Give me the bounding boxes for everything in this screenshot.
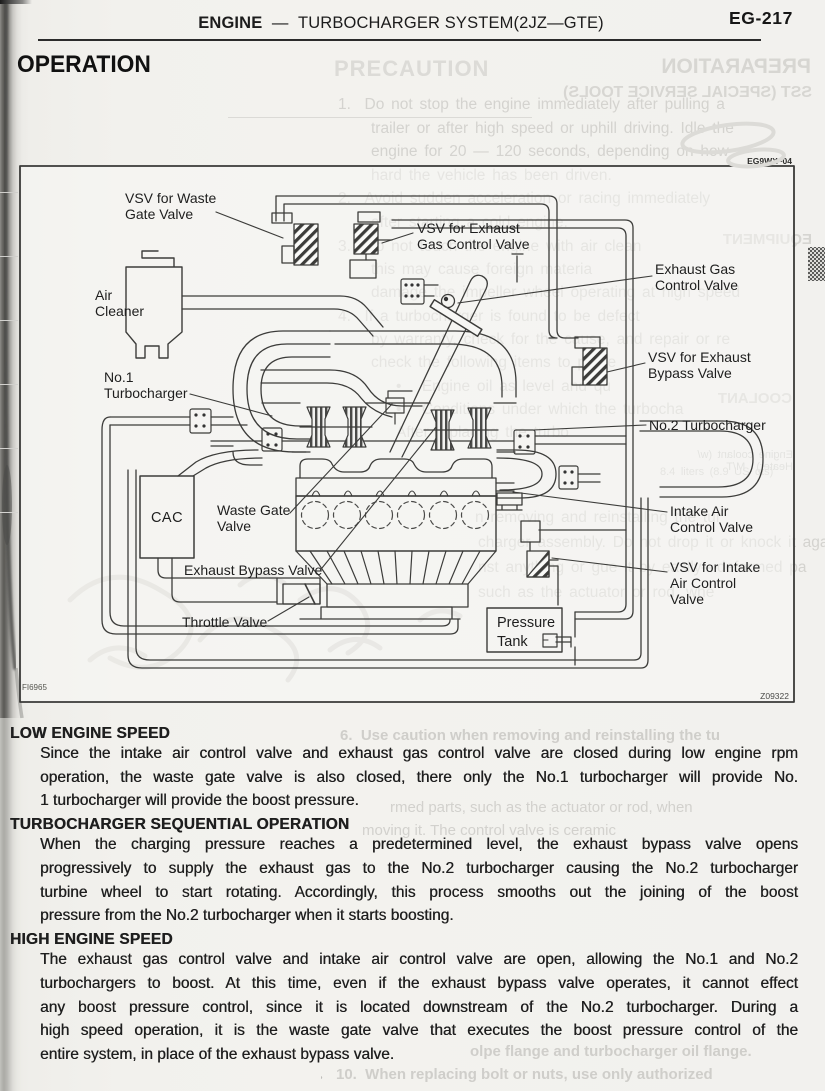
svg-text:Gas Control Valve: Gas Control Valve — [417, 236, 530, 252]
svg-text:VSV for Exhaust: VSV for Exhaust — [417, 220, 520, 236]
svg-text:VSV for Exhaust: VSV for Exhaust — [648, 349, 751, 365]
svg-text:No.1: No.1 — [104, 369, 134, 385]
svg-text:Tank: Tank — [497, 634, 528, 650]
svg-text:Pressure: Pressure — [497, 615, 555, 631]
svg-text:Intake Air: Intake Air — [670, 503, 729, 519]
svg-text:Valve: Valve — [670, 591, 704, 607]
svg-text:FI6965: FI6965 — [22, 683, 47, 692]
svg-text:Air Control: Air Control — [670, 575, 736, 591]
svg-text:Exhaust Bypass Valve: Exhaust Bypass Valve — [184, 562, 322, 578]
svg-text:Waste Gate: Waste Gate — [217, 502, 291, 518]
svg-text:Control Valve: Control Valve — [670, 519, 753, 535]
svg-text:Cleaner: Cleaner — [95, 303, 144, 319]
svg-text:Control Valve: Control Valve — [655, 277, 738, 293]
svg-text:Gate Valve: Gate Valve — [125, 206, 193, 222]
svg-text:Valve: Valve — [217, 518, 251, 534]
svg-text:Exhaust Gas: Exhaust Gas — [655, 261, 735, 277]
svg-text:Throttle Valve: Throttle Valve — [182, 614, 268, 630]
svg-text:VSV for Waste: VSV for Waste — [125, 190, 217, 206]
svg-text:Air: Air — [95, 287, 112, 303]
svg-text:VSV for Intake: VSV for Intake — [670, 559, 760, 575]
svg-text:CAC: CAC — [151, 510, 183, 526]
svg-text:No.2 Turbocharger: No.2 Turbocharger — [649, 417, 766, 433]
svg-text:Turbocharger: Turbocharger — [104, 385, 188, 401]
svg-text:Bypass Valve: Bypass Valve — [648, 365, 732, 381]
svg-text:Z09322: Z09322 — [760, 691, 789, 701]
